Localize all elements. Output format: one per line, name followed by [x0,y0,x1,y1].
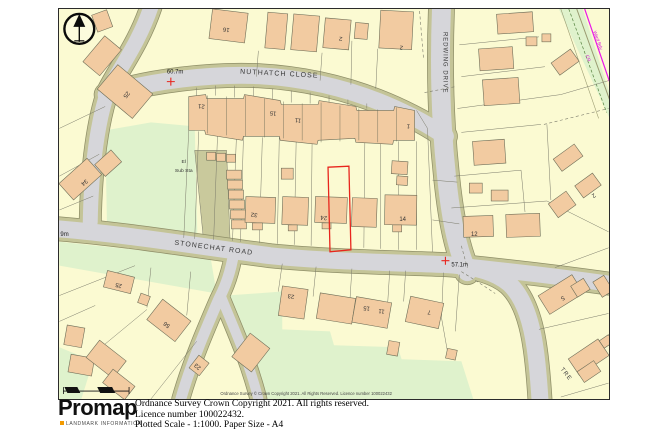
building [232,220,247,229]
spot-height-label: 60.7m [167,70,184,76]
building [472,139,505,165]
building [396,176,408,186]
credit-line-licence: Licence number 100022432. [135,410,369,421]
building [323,18,351,50]
building [291,14,320,52]
building [463,215,494,237]
building [387,341,400,357]
building [265,12,288,49]
building [245,197,276,224]
building [506,213,541,237]
building [64,325,85,348]
building [252,223,262,230]
credit-line-copyright: Ordnance Survey Crown Copyright 2021. Al… [135,399,369,410]
building [278,286,308,319]
landmark-tagline: LANDMARK INFORMATION [60,421,142,427]
promap-logo: Promap [58,397,137,419]
building [207,152,216,160]
north-arrow-icon [64,14,94,44]
building [229,190,244,199]
el-label: El [182,159,186,165]
building [482,77,520,105]
building [316,293,355,324]
building [391,161,408,175]
spot-height-label: 9m [60,232,68,238]
building [469,183,482,193]
spot-height-label: 57.1m [451,263,468,269]
sub-sta-label: Sub Sta [175,168,193,174]
building [393,225,402,232]
road-label-redwing-drive: REDWING DRIVE [441,32,447,94]
building [479,47,514,71]
building [445,348,457,360]
building [228,180,243,189]
credit-line-scale: Plotted Scale - 1:1000. Paper Size - A4 [135,420,369,431]
inline-copyright: Ordnance Survey © Crown Copyright 2021. … [220,391,392,396]
building [209,9,248,43]
building [351,198,377,228]
map-canvas[interactable]: Ward Bdy CR NUTHATCH CLOSE REDWING DRIVE… [58,8,610,400]
building [231,210,246,219]
building [542,34,551,42]
os-map: Ward Bdy CR NUTHATCH CLOSE REDWING DRIVE… [59,9,609,399]
building [281,168,293,179]
promap-print-page: Ward Bdy CR NUTHATCH CLOSE REDWING DRIVE… [0,0,650,433]
building [354,22,368,39]
building [491,190,508,201]
building [227,170,242,179]
building [217,153,226,161]
building [230,200,245,209]
building [315,196,348,223]
house-number: 14 [399,217,406,223]
building [288,225,297,231]
landmark-tagline-text: LANDMARK INFORMATION [66,421,142,427]
building [526,37,537,46]
house-number: 12 [471,232,478,238]
building [379,10,414,49]
building [227,154,236,162]
building [282,197,309,226]
landmark-accent-square [60,421,64,425]
building [497,12,534,34]
map-credits: Ordnance Survey Crown Copyright 2021. Al… [135,399,369,431]
